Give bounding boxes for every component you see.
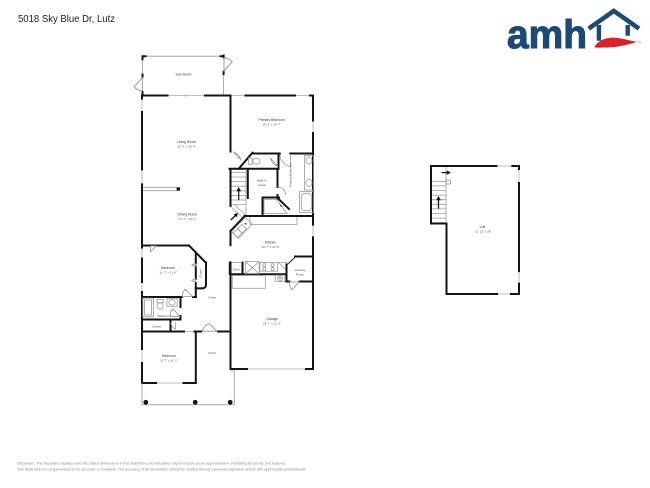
- svg-text:16' 7" x 12' 8": 16' 7" x 12' 8": [261, 245, 279, 249]
- svg-text:TM: TM: [637, 41, 642, 45]
- svg-text:11' 7" x 11' 1": 11' 7" x 11' 1": [160, 358, 178, 362]
- svg-text:Primary Bathroom: Primary Bathroom: [289, 162, 293, 187]
- svg-text:Loft: Loft: [480, 225, 486, 229]
- svg-text:Primary Bedroom: Primary Bedroom: [259, 118, 286, 122]
- svg-text:Dining Room: Dining Room: [177, 213, 197, 217]
- svg-text:21' 1" x 16' 7": 21' 1" x 16' 7": [179, 217, 197, 221]
- svg-text:Bedroom: Bedroom: [161, 266, 175, 270]
- svg-text:11' 7" x 11' 6": 11' 7" x 11' 6": [159, 271, 177, 275]
- svg-text:18' 7" x 21' 3": 18' 7" x 21' 3": [263, 322, 281, 326]
- svg-text:Living Room: Living Room: [177, 140, 196, 144]
- svg-text:Closet: Closet: [152, 324, 161, 328]
- svg-text:5018 Sky Blue Dr, Lutz: 5018 Sky Blue Dr, Lutz: [18, 14, 115, 25]
- svg-text:Closet: Closet: [258, 183, 267, 187]
- svg-text:This illustration is not guara: This illustration is not guaranteed to b…: [17, 468, 307, 472]
- svg-text:15' 11" x 28': 15' 11" x 28': [475, 230, 491, 234]
- svg-text:Closet: Closet: [198, 269, 202, 278]
- svg-text:Kitchen: Kitchen: [265, 240, 276, 244]
- svg-text:Room: Room: [296, 273, 305, 277]
- svg-text:16' 6" x 14' 7": 16' 6" x 14' 7": [263, 123, 281, 127]
- svg-text:amh: amh: [507, 13, 587, 57]
- svg-text:22' 2" x 20' 9": 22' 2" x 20' 9": [178, 144, 196, 148]
- svg-text:Walk-In: Walk-In: [257, 179, 267, 183]
- svg-text:Sun Room: Sun Room: [175, 73, 191, 77]
- svg-text:Oven: Oven: [233, 267, 241, 271]
- svg-text:Garage: Garage: [266, 317, 277, 321]
- svg-text:Laundry: Laundry: [295, 268, 306, 272]
- svg-text:Bathroom: Bathroom: [157, 314, 171, 318]
- svg-text:Disclaimer: The floorplans dep: Disclaimer: The floorplans depicted and …: [17, 462, 286, 466]
- svg-text:Foyer: Foyer: [208, 296, 216, 300]
- svg-text:Bedroom: Bedroom: [162, 354, 176, 358]
- svg-text:Porch: Porch: [208, 351, 216, 355]
